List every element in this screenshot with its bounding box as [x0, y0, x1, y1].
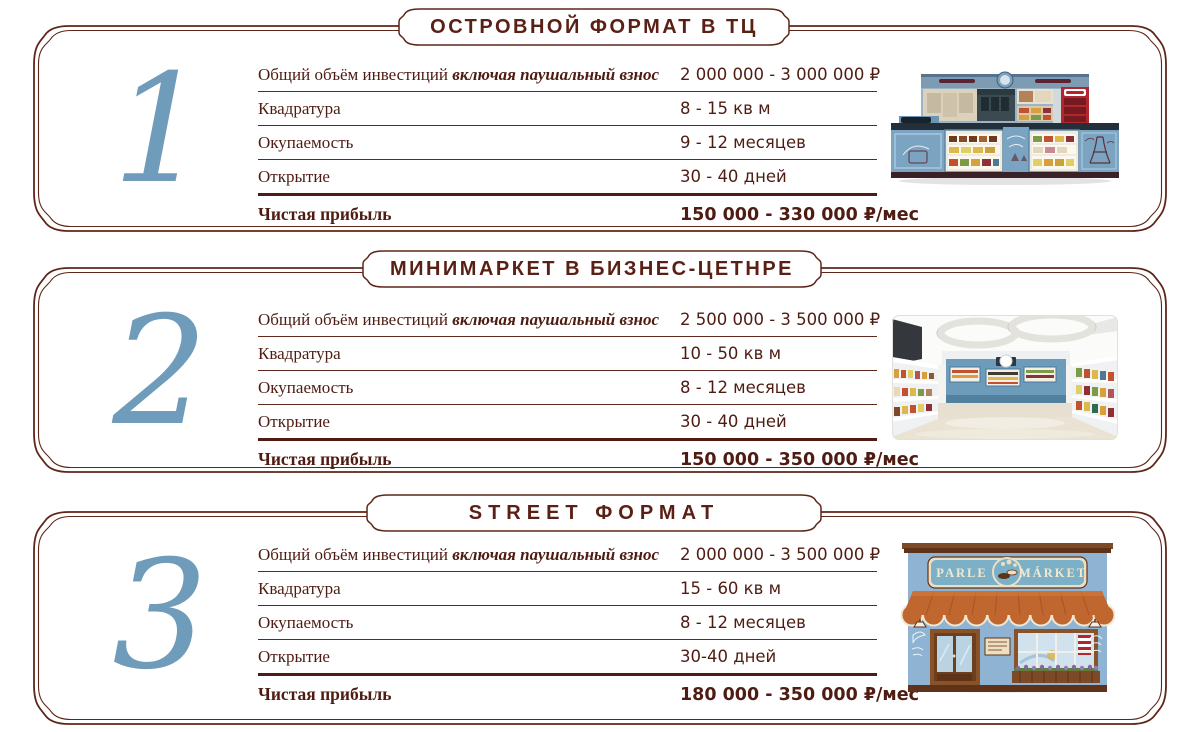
format-panel-minimarket: 2 Общий объём инвестиций включая паушаль…: [33, 267, 1167, 473]
row-value: 30-40 дней: [680, 647, 776, 666]
format-number: 1: [80, 53, 240, 208]
row-value: 2 000 000 - 3 500 000 ₽: [680, 545, 880, 564]
row-label: Открытие: [258, 647, 680, 667]
profit-row: Чистая прибыль 150 000 - 330 000 ₽/мес: [258, 193, 877, 233]
format-info-table: Общий объём инвестиций включая паушальны…: [258, 303, 877, 478]
sign-word-right: MÁRKET: [1019, 566, 1087, 580]
row-value: 30 - 40 дней: [680, 412, 787, 431]
island-kiosk-illustration: [885, 67, 1125, 192]
table-row: Открытие 30 - 40 дней: [258, 405, 877, 438]
table-row: Общий объём инвестиций включая паушальны…: [258, 538, 877, 572]
row-label: Окупаемость: [258, 378, 680, 398]
panel-title-plaque: МИНИМАРКЕТ В БИЗНЕС-ЦЕТНРЕ: [362, 250, 822, 288]
table-row: Окупаемость 8 - 12 месяцев: [258, 371, 877, 405]
profit-value: 150 000 - 330 000 ₽/мес: [680, 205, 919, 225]
row-label: Квадратура: [258, 99, 680, 119]
awning: [902, 591, 1115, 626]
storefront-base: [908, 685, 1107, 692]
panel-title-plaque: ОСТРОВНОЙ ФОРМАТ В ТЦ: [398, 8, 790, 46]
menu-board: [985, 638, 1010, 655]
row-label: Общий объём инвестиций включая паушальны…: [258, 65, 680, 85]
cola-cooler: [1061, 87, 1089, 123]
row-value: 2 500 000 - 3 500 000 ₽: [680, 310, 880, 329]
format-panel-island: 1 Общий объём инвестиций включая паушаль…: [33, 25, 1167, 232]
table-row: Общий объём инвестиций включая паушальны…: [258, 303, 877, 337]
table-row: Квадратура 15 - 60 кв м: [258, 572, 877, 606]
table-row: Окупаемость 9 - 12 месяцев: [258, 126, 877, 160]
table-row: Квадратура 10 - 50 кв м: [258, 337, 877, 371]
row-value: 8 - 15 кв м: [680, 99, 771, 118]
minimarket-interior-photo: [892, 315, 1118, 445]
row-value: 9 - 12 месяцев: [680, 133, 806, 152]
row-value: 8 - 12 месяцев: [680, 378, 806, 397]
kiosk-counters: [891, 116, 1119, 178]
storefront-sign: PARLE MÁRKET: [928, 557, 1087, 588]
profit-label: Чистая прибыль: [258, 204, 680, 225]
table-row: Окупаемость 8 - 12 месяцев: [258, 606, 877, 640]
panel-title: ОСТРОВНОЙ ФОРМАТ В ТЦ: [398, 8, 790, 46]
profit-row: Чистая прибыль 180 000 - 350 000 ₽/мес: [258, 673, 877, 713]
row-value: 30 - 40 дней: [680, 167, 787, 186]
table-row: Открытие 30-40 дней: [258, 640, 877, 673]
profit-value: 180 000 - 350 000 ₽/мес: [680, 685, 919, 705]
table-row: Квадратура 8 - 15 кв м: [258, 92, 877, 126]
row-label: Окупаемость: [258, 133, 680, 153]
row-label: Окупаемость: [258, 613, 680, 633]
sign-word-left: PARLE: [936, 566, 987, 580]
format-info-table: Общий объём инвестиций включая паушальны…: [258, 538, 877, 713]
profit-label: Чистая прибыль: [258, 684, 680, 705]
back-counter: [942, 351, 1070, 403]
street-storefront-illustration: PARLE MÁRKET: [900, 543, 1115, 698]
panel-title-plaque: STREET ФОРМАТ: [366, 494, 822, 532]
profit-label: Чистая прибыль: [258, 449, 680, 470]
row-label: Открытие: [258, 412, 680, 432]
row-label: Открытие: [258, 167, 680, 187]
table-row: Открытие 30 - 40 дней: [258, 160, 877, 193]
row-value: 15 - 60 кв м: [680, 579, 781, 598]
franchise-formats-page: 1 Общий объём инвестиций включая паушаль…: [0, 0, 1200, 732]
format-number: 2: [80, 295, 240, 450]
row-label: Квадратура: [258, 579, 680, 599]
row-label: Общий объём инвестиций включая паушальны…: [258, 310, 680, 330]
profit-value: 150 000 - 350 000 ₽/мес: [680, 450, 919, 470]
row-label: Общий объём инвестиций включая паушальны…: [258, 545, 680, 565]
format-info-table: Общий объём инвестиций включая паушальны…: [258, 58, 877, 233]
format-panel-street: 3 Общий объём инвестиций включая паушаль…: [33, 511, 1167, 725]
row-value: 2 000 000 - 3 000 000 ₽: [680, 65, 880, 84]
row-label: Квадратура: [258, 344, 680, 364]
panel-title: МИНИМАРКЕТ В БИЗНЕС-ЦЕТНРЕ: [362, 250, 822, 288]
profit-row: Чистая прибыль 150 000 - 350 000 ₽/мес: [258, 438, 877, 478]
format-number: 3: [80, 539, 240, 694]
table-row: Общий объём инвестиций включая паушальны…: [258, 58, 877, 92]
row-value: 8 - 12 месяцев: [680, 613, 806, 632]
entrance-door: [930, 629, 980, 685]
row-value: 10 - 50 кв м: [680, 344, 781, 363]
panel-title: STREET ФОРМАТ: [366, 494, 822, 532]
